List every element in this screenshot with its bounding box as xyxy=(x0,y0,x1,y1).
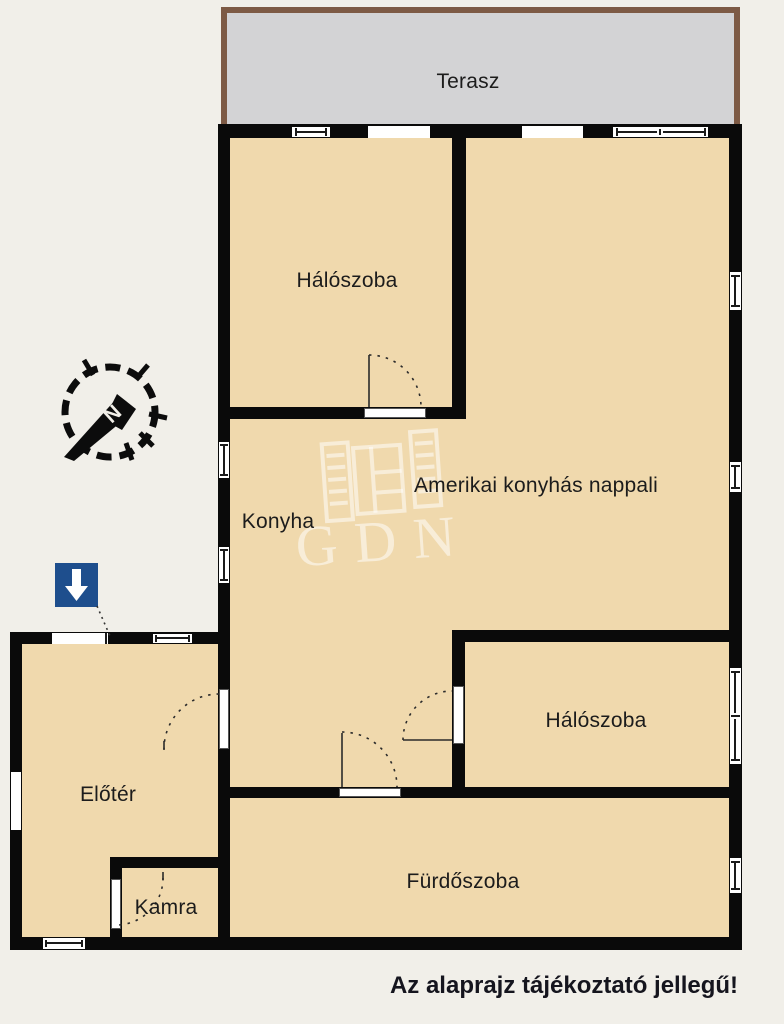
room-label-kitchen: Konyha xyxy=(242,510,314,534)
room-label-bedroom-top: Hálószoba xyxy=(296,269,397,293)
room-label-terrace: Terasz xyxy=(436,70,499,94)
floor-plan-canvas: N GDN Terasz Hálószoba Amerikai konyhás … xyxy=(0,0,784,1024)
compass-icon: N xyxy=(64,360,167,461)
watermark-text: GDN xyxy=(293,502,474,579)
room-label-foyer: Előtér xyxy=(80,783,136,807)
door-swings xyxy=(116,355,452,925)
room-label-pantry: Kamra xyxy=(135,896,198,920)
entrance-guide-line xyxy=(97,606,110,636)
entrance-down-arrow-icon xyxy=(65,569,88,601)
room-label-bedroom-right: Hálószoba xyxy=(545,709,646,733)
watermark-logo-icon: GDN xyxy=(288,428,474,579)
disclaimer-text: Az alaprajz tájékoztató jellegű! xyxy=(390,972,738,1000)
plan-overlay: N GDN xyxy=(0,0,784,1024)
room-label-bathroom: Fürdőszoba xyxy=(407,870,520,894)
room-label-living: Amerikai konyhás nappali xyxy=(414,474,658,498)
